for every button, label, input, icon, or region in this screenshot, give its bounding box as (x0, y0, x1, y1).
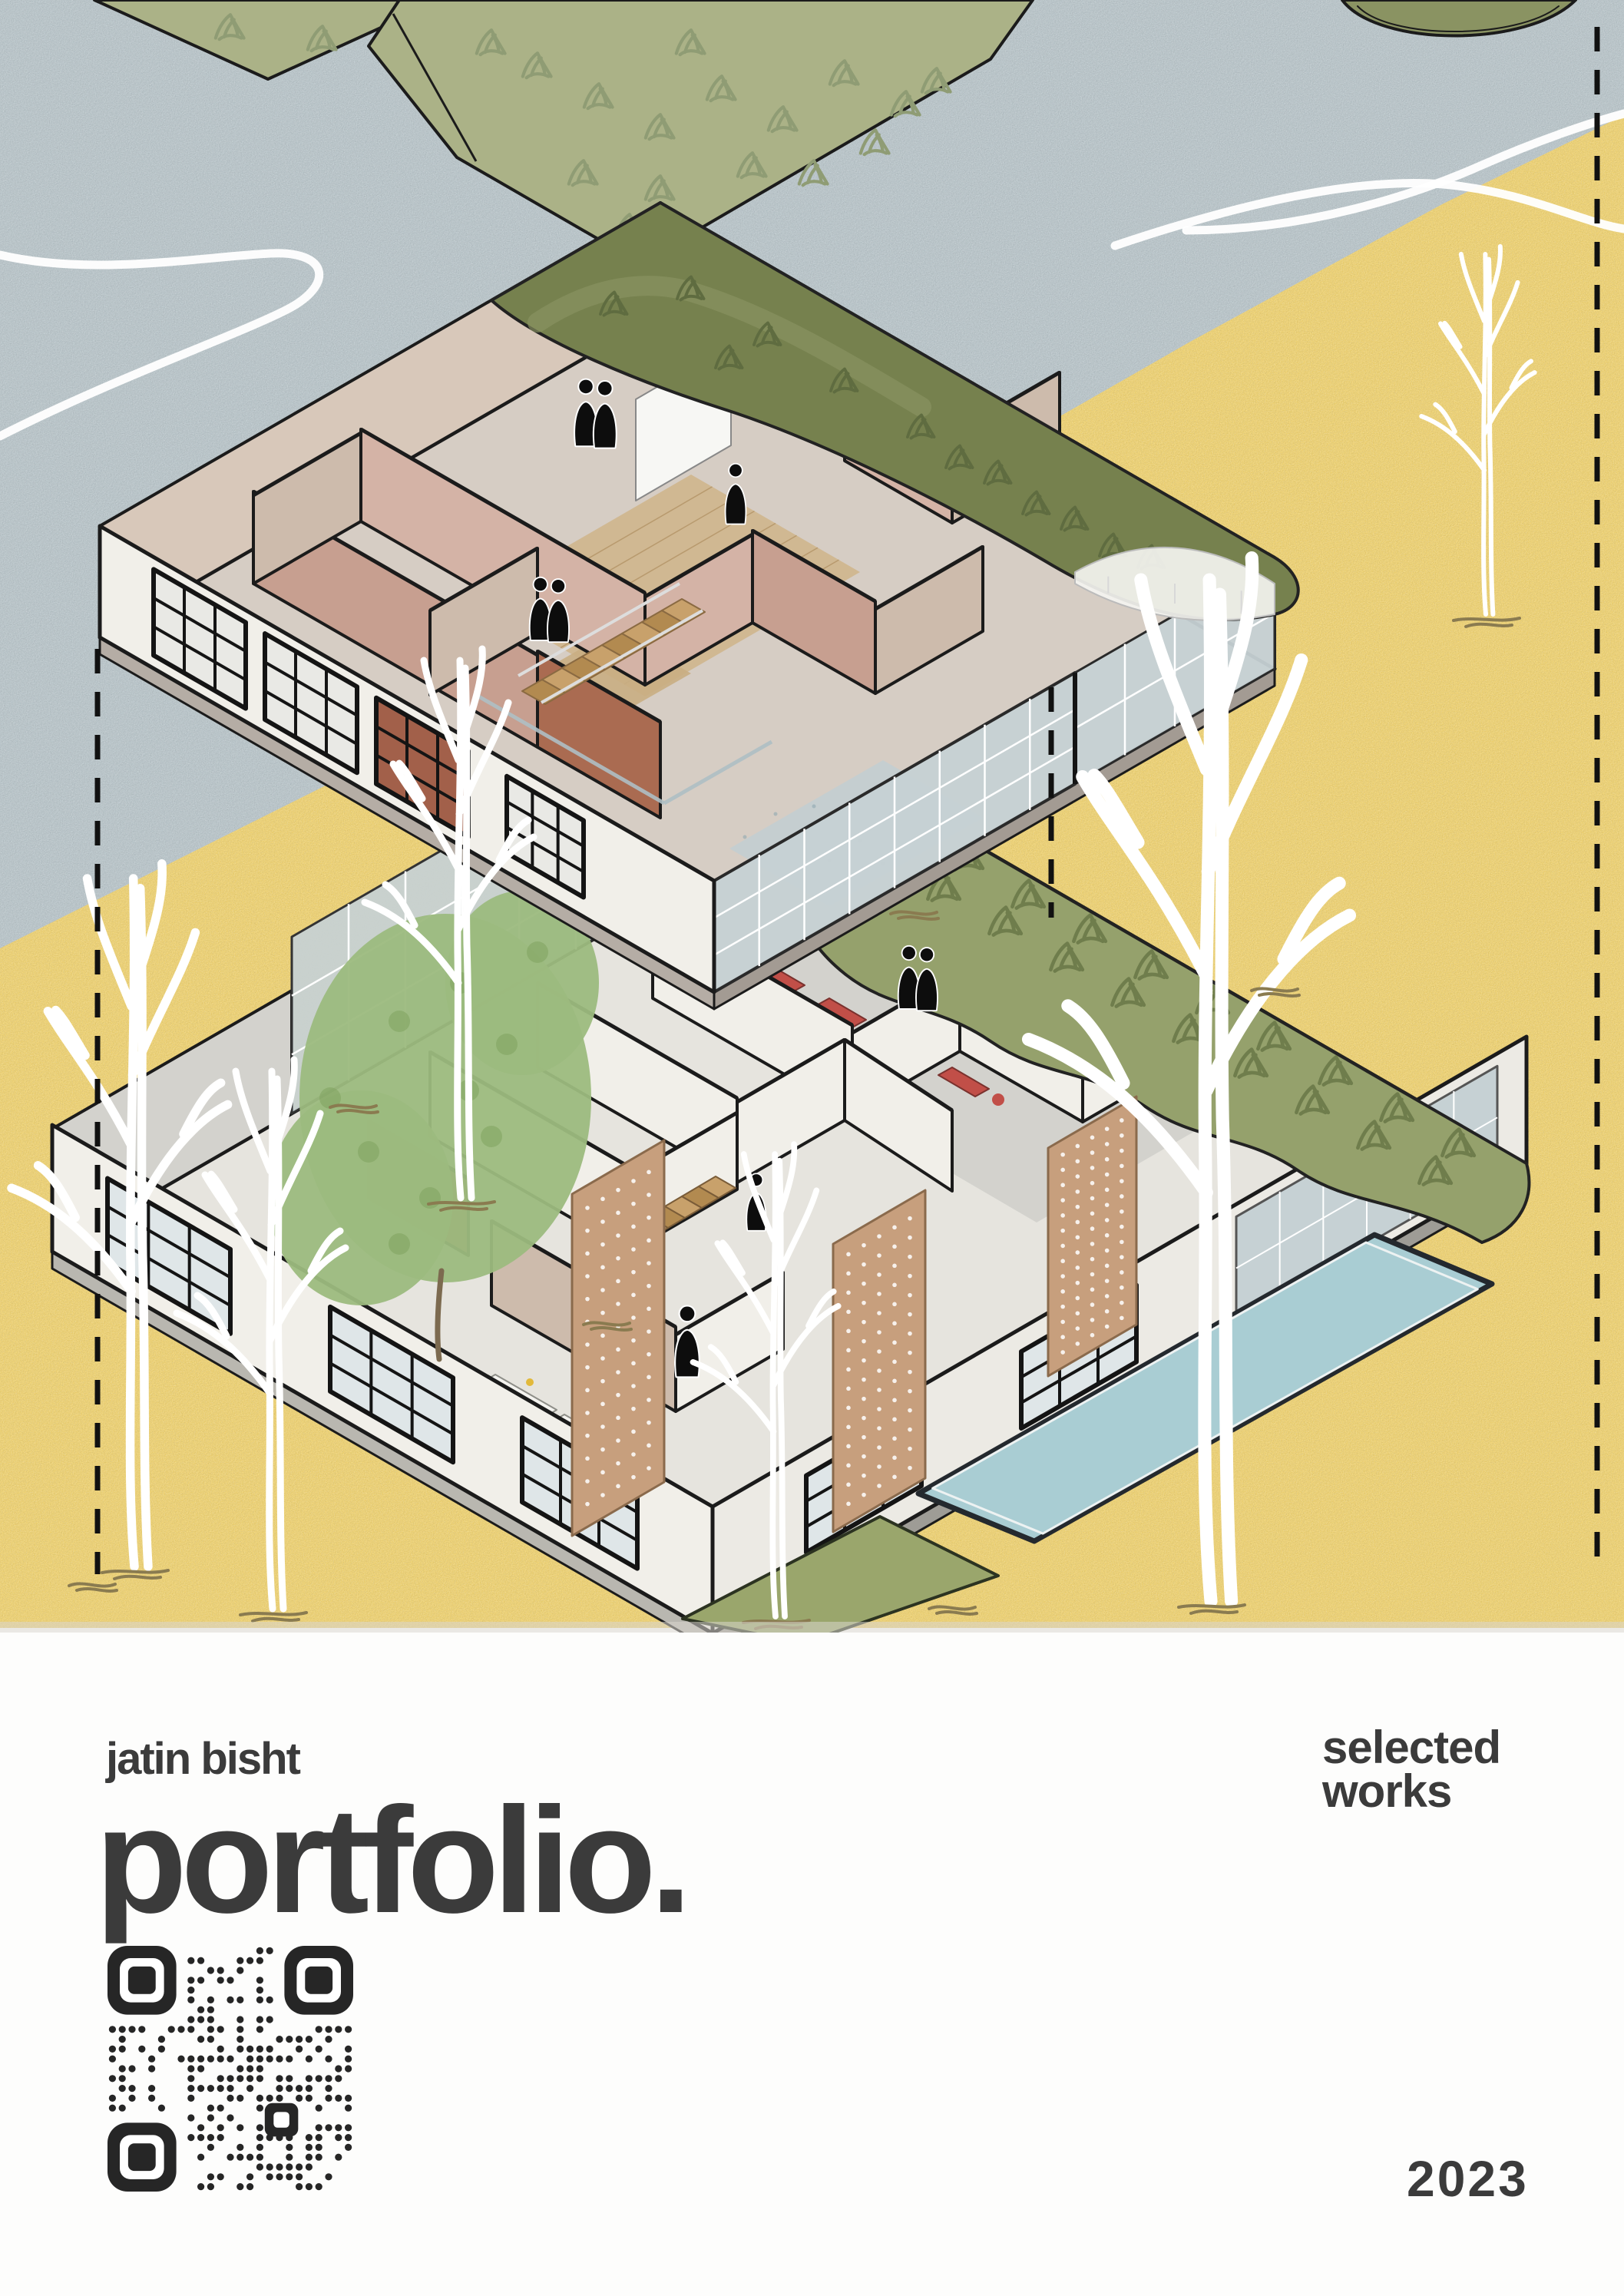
page-title: portfolio. (95, 1785, 686, 1936)
year: 2023 (1407, 2153, 1529, 2204)
author-name: jatin bisht (106, 1737, 299, 1782)
perforated-screen (572, 1140, 664, 1536)
portfolio-cover-illustration (0, 0, 1624, 2296)
subtitle: selected works (1322, 1725, 1500, 1813)
perforated-screen (833, 1190, 925, 1532)
